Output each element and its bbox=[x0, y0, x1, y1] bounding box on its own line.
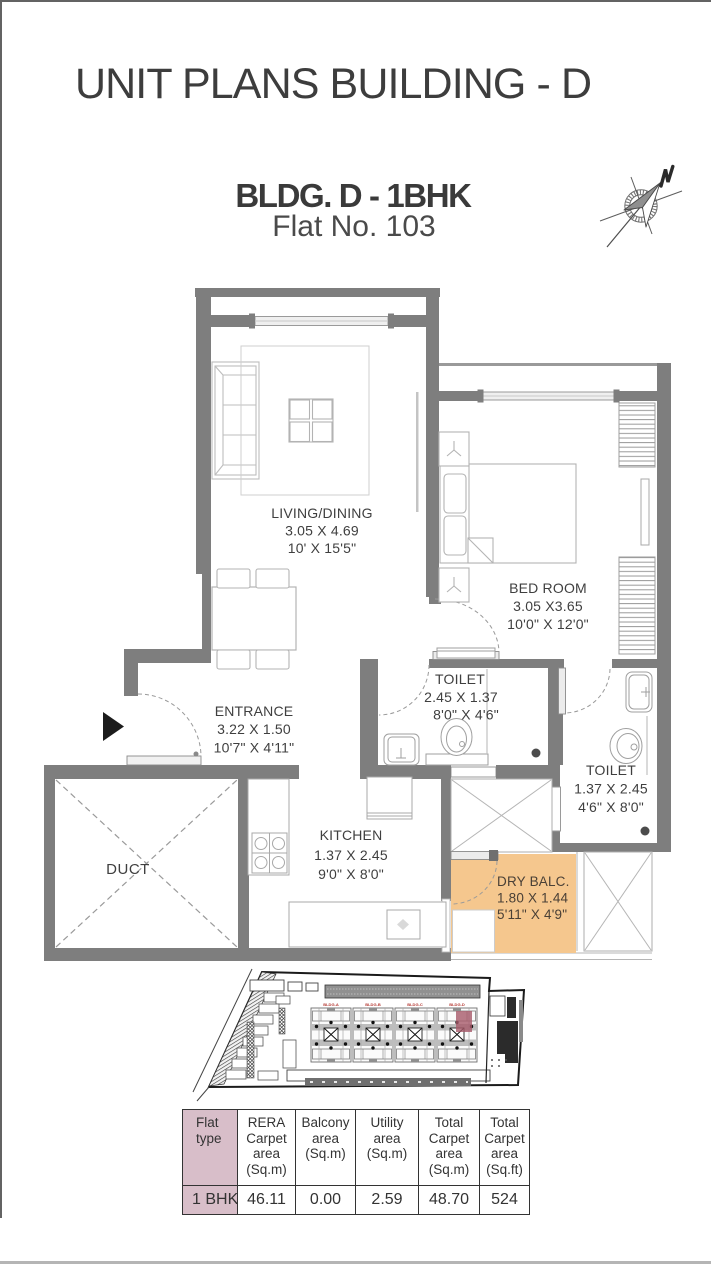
svg-text:1.80 X 1.44: 1.80 X 1.44 bbox=[497, 891, 569, 906]
svg-text:BLDG-C: BLDG-C bbox=[407, 1002, 423, 1007]
svg-text:TOILET: TOILET bbox=[435, 671, 485, 687]
svg-text:1.37 X 2.45: 1.37 X 2.45 bbox=[574, 781, 648, 797]
svg-text:9'0" X 8'0": 9'0" X 8'0" bbox=[318, 866, 384, 882]
svg-text:5'11" X 4'9": 5'11" X 4'9" bbox=[497, 907, 567, 922]
svg-text:DUCT: DUCT bbox=[106, 861, 150, 878]
svg-text:8'0" X 4'6": 8'0" X 4'6" bbox=[433, 707, 499, 723]
svg-text:DRY BALC.: DRY BALC. bbox=[497, 874, 570, 889]
svg-text:10' X 15'5": 10' X 15'5" bbox=[288, 540, 357, 556]
svg-text:1.37 X 2.45: 1.37 X 2.45 bbox=[314, 847, 388, 863]
svg-text:BED ROOM: BED ROOM bbox=[509, 580, 587, 596]
svg-text:KITCHEN: KITCHEN bbox=[320, 827, 383, 843]
svg-text:3.22 X 1.50: 3.22 X 1.50 bbox=[217, 721, 291, 737]
svg-text:4'6" X 8'0": 4'6" X 8'0" bbox=[578, 799, 644, 815]
svg-text:2.45 X 1.37: 2.45 X 1.37 bbox=[424, 689, 498, 705]
svg-text:10'7" X 4'11": 10'7" X 4'11" bbox=[214, 740, 295, 756]
svg-text:BLDG-D: BLDG-D bbox=[449, 1002, 465, 1007]
svg-text:3.05 X 4.69: 3.05 X 4.69 bbox=[285, 523, 359, 539]
svg-text:ENTRANCE: ENTRANCE bbox=[215, 703, 294, 719]
svg-text:BLDG-B: BLDG-B bbox=[365, 1002, 381, 1007]
svg-text:3.05 X3.65: 3.05 X3.65 bbox=[513, 598, 583, 614]
svg-text:LIVING/DINING: LIVING/DINING bbox=[271, 505, 372, 521]
svg-text:BLDG-A: BLDG-A bbox=[323, 1002, 339, 1007]
svg-text:TOILET: TOILET bbox=[586, 762, 636, 778]
svg-text:10'0" X 12'0": 10'0" X 12'0" bbox=[507, 616, 589, 632]
